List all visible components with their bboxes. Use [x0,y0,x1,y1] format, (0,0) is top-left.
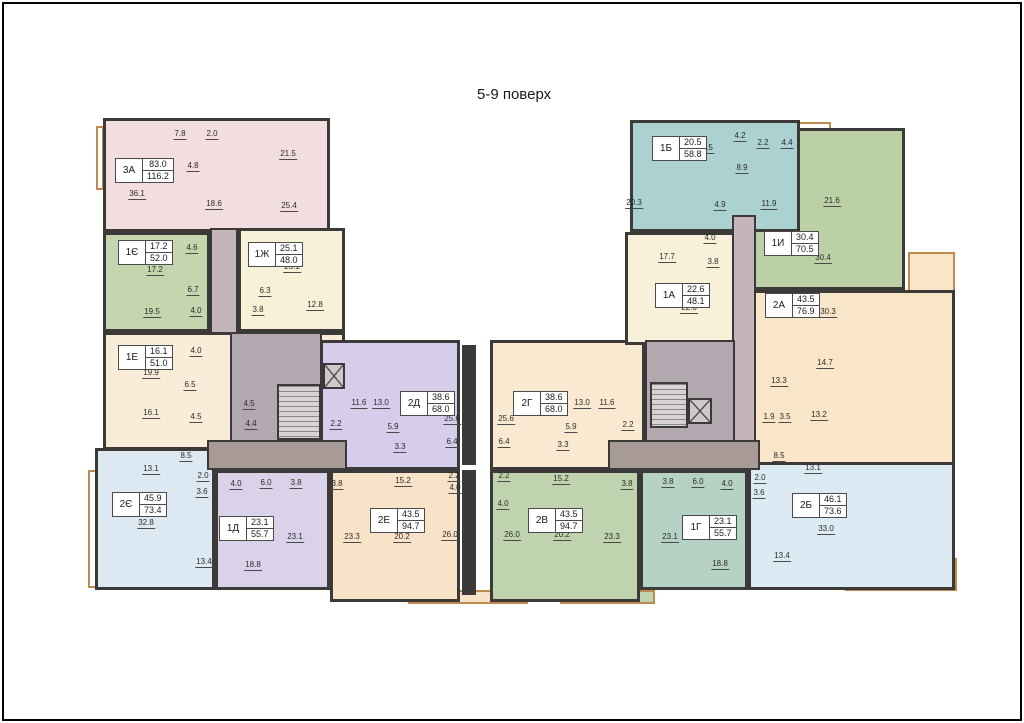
room-area-label: 19.5 [143,307,161,318]
room-area-label: 23.3 [343,532,361,543]
living-area-value: 43.5 [398,509,424,521]
corridor-right [732,215,756,460]
room-area-label: 4.0 [189,346,202,357]
room-area-label: 6.3 [258,286,271,297]
apartment-code: 1Е [119,346,146,369]
room-area-label: 6.4 [497,437,510,448]
apartment-areas: 25.148.0 [276,243,302,266]
apartment-code: 2Є [113,493,140,516]
core-wall-center-upper [462,345,476,465]
apartment-code: 2Б [793,494,820,517]
room-area-label: 4.4 [780,138,793,149]
apartment-label-2d: 2Д38.668.0 [400,391,455,416]
room-area-label: 13.1 [804,463,822,474]
room-area-label: 11.9 [761,199,778,210]
room-area-label: 18.8 [244,560,262,571]
living-area-value: 46.1 [820,494,846,506]
apartment-label-2ie: 2Є45.973.4 [112,492,167,517]
room-area-label: 2.0 [196,471,209,482]
living-area-value: 43.5 [556,509,582,521]
room-area-label: 15.2 [394,476,412,487]
apartment-code: 2А [766,294,793,317]
apartment-label-1d: 1Д23.155.7 [219,516,274,541]
room-area-label: 1.9 [762,412,775,423]
total-area-value: 73.4 [140,505,166,516]
apartment-label-1e: 1Е16.151.0 [118,345,173,370]
vestibule-left [207,440,347,470]
room-area-label: 4.4 [244,419,257,430]
room-area-label: 3.3 [556,440,569,451]
apartment-label-1a: 1А22.648.1 [655,283,710,308]
living-area-value: 20.5 [680,137,706,149]
total-area-value: 51.0 [146,358,172,369]
floor-plan: 7.82.021.54.836.118.625.44.617.26.719.54… [0,0,1024,723]
total-area-value: 55.7 [710,528,736,539]
room-area-label: 3.8 [289,478,302,489]
room-area-label: 4.0 [189,306,202,317]
room-area-label: 13.3 [770,376,788,387]
living-area-value: 23.1 [247,517,273,529]
elevator-left [323,363,345,389]
room-area-label: 5.9 [564,422,577,433]
apartment-areas: 22.648.1 [683,284,709,307]
room-area-label: 13.0 [573,398,591,409]
room-area-label: 12.8 [306,300,324,311]
living-area-value: 38.6 [428,392,454,404]
room-area-label: 3.8 [330,479,343,490]
corridor-left [210,228,238,334]
apartment-areas: 30.470.5 [792,232,818,255]
room-area-label: 3.8 [251,305,264,316]
living-area-value: 45.9 [140,493,166,505]
apartment-label-2g: 2Г38.668.0 [513,391,568,416]
room-area-label: 32.8 [137,518,155,529]
total-area-value: 94.7 [556,521,582,532]
apartment-label-2b: 2Б46.173.6 [792,493,847,518]
room-area-label: 16.1 [142,408,160,419]
living-area-value: 23.1 [710,516,736,528]
living-area-value: 43.5 [793,294,819,306]
apartment-areas: 45.973.4 [140,493,166,516]
room-area-label: 18.6 [205,199,223,210]
apartment-label-1b: 1Б20.558.8 [652,136,707,161]
apartment-areas: 23.155.7 [710,516,736,539]
room-area-label: 2.2 [621,420,634,431]
room-area-label: 4.5 [189,412,202,423]
apartment-code: 2Г [514,392,541,415]
room-area-label: 14.7 [816,358,834,369]
room-area-label: 6.4 [445,437,458,448]
room-area-label: 4.0 [720,479,733,490]
room-area-label: 2.2 [497,471,510,482]
vestibule-right [608,440,760,470]
room-area-label: 6.7 [186,285,199,296]
apartment-2b [748,452,955,590]
room-area-label: 18.8 [711,559,729,570]
room-area-label: 13.4 [195,557,213,568]
total-area-value: 48.1 [683,296,709,307]
living-area-value: 25.1 [276,243,302,255]
room-area-label: 26.0 [503,530,521,541]
room-area-label: 25.4 [280,201,298,212]
apartment-areas: 46.173.6 [820,494,846,517]
room-area-label: 11.6 [599,398,616,409]
room-area-label: 4.0 [229,479,242,490]
apartment-areas: 43.576.9 [793,294,819,317]
room-area-label: 2.2 [329,419,342,430]
total-area-value: 73.6 [820,506,846,517]
room-area-label: 20.2 [393,532,411,543]
room-area-label: 13.0 [372,398,390,409]
room-area-label: 3.8 [661,477,674,488]
room-area-label: 4.8 [186,161,199,172]
apartment-code: 1Г [683,516,710,539]
apartment-code: 1Є [119,241,146,264]
room-area-label: 4.0 [703,233,716,244]
living-area-value: 22.6 [683,284,709,296]
apartment-areas: 43.594.7 [556,509,582,532]
living-area-value: 83.0 [143,159,173,171]
room-area-label: 15.2 [552,474,570,485]
floor-title: 5-9 поверх [477,86,551,103]
total-area-value: 48.0 [276,255,302,266]
total-area-value: 94.7 [398,521,424,532]
core-wall-center-lower [462,470,476,595]
apartment-areas: 16.151.0 [146,346,172,369]
stair-left [277,384,321,440]
room-area-label: 2.2 [447,471,460,482]
room-area-label: 4.0 [448,483,461,494]
room-area-label: 21.6 [823,196,841,207]
room-area-label: 21.5 [279,149,297,160]
total-area-value: 116.2 [143,171,173,182]
floor-plan-canvas: 5-9 поверх 7.82.021.54.836.118.625.44.61… [0,0,1024,723]
total-area-value: 70.5 [792,244,818,255]
apartment-code: 1Б [653,137,680,160]
room-area-label: 2.2 [756,138,769,149]
apartment-areas: 20.558.8 [680,137,706,160]
room-area-label: 3.5 [778,412,791,423]
room-area-label: 8.5 [772,451,785,462]
room-area-label: 17.2 [146,265,164,276]
apartment-label-1i: 1И30.470.5 [764,231,819,256]
room-area-label: 11.6 [351,398,368,409]
apartment-areas: 43.594.7 [398,509,424,532]
room-area-label: 33.0 [817,524,835,535]
room-area-label: 23.3 [603,532,621,543]
room-area-label: 2.0 [753,473,766,484]
room-area-label: 20.3 [625,198,643,209]
apartment-areas: 23.155.7 [247,517,273,540]
room-area-label: 26.0 [441,530,459,541]
living-area-value: 38.6 [541,392,567,404]
room-area-label: 3.6 [752,488,765,499]
room-area-label: 4.5 [242,399,255,410]
room-area-label: 3.6 [195,487,208,498]
room-area-label: 17.7 [658,252,676,263]
room-area-label: 4.2 [733,131,746,142]
apartment-code: 1Ж [249,243,276,266]
room-area-label: 3.3 [393,442,406,453]
total-area-value: 76.9 [793,306,819,317]
room-area-label: 5.9 [386,422,399,433]
room-area-label: 8.5 [179,451,192,462]
living-area-value: 30.4 [792,232,818,244]
room-area-label: 3.8 [706,257,719,268]
apartment-areas: 17.252.0 [146,241,172,264]
apartment-label-3a: 3А83.0116.2 [115,158,174,183]
room-area-label: 13.1 [142,464,160,475]
total-area-value: 68.0 [541,404,567,415]
total-area-value: 68.0 [428,404,454,415]
apartment-label-2a: 2А43.576.9 [765,293,820,318]
apartment-label-2e: 2Е43.594.7 [370,508,425,533]
total-area-value: 52.0 [146,253,172,264]
apartment-code: 2Е [371,509,398,532]
room-area-label: 6.0 [259,478,272,489]
room-area-label: 13.4 [773,551,791,562]
apartment-label-1zh: 1Ж25.148.0 [248,242,303,267]
apartment-code: 1Д [220,517,247,540]
room-area-label: 7.8 [173,129,186,140]
room-area-label: 3.8 [620,479,633,490]
apartment-code: 2В [529,509,556,532]
living-area-value: 16.1 [146,346,172,358]
apartment-areas: 38.668.0 [541,392,567,415]
room-area-label: 8.9 [735,163,748,174]
elevator-right [688,398,712,424]
total-area-value: 58.8 [680,149,706,160]
room-area-label: 4.0 [496,499,509,510]
room-area-label: 36.1 [128,189,146,200]
apartment-areas: 38.668.0 [428,392,454,415]
apartment-areas: 83.0116.2 [143,159,173,182]
total-area-value: 55.7 [247,529,273,540]
room-area-label: 2.0 [205,129,218,140]
room-area-label: 23.1 [286,532,304,543]
apartment-label-1ie: 1Є17.252.0 [118,240,173,265]
room-area-label: 23.1 [661,532,679,543]
apartment-label-2v: 2В43.594.7 [528,508,583,533]
stair-right [650,382,688,428]
apartment-label-1g: 1Г23.155.7 [682,515,737,540]
apartment-code: 2Д [401,392,428,415]
room-area-label: 6.5 [183,380,196,391]
room-area-label: 4.9 [713,200,726,211]
apartment-code: 3А [116,159,143,182]
room-area-label: 6.0 [691,477,704,488]
room-area-label: 4.6 [185,243,198,254]
apartment-code: 1А [656,284,683,307]
living-area-value: 17.2 [146,241,172,253]
room-area-label: 30.3 [819,307,837,318]
apartment-code: 1И [765,232,792,255]
room-area-label: 13.2 [810,410,828,421]
